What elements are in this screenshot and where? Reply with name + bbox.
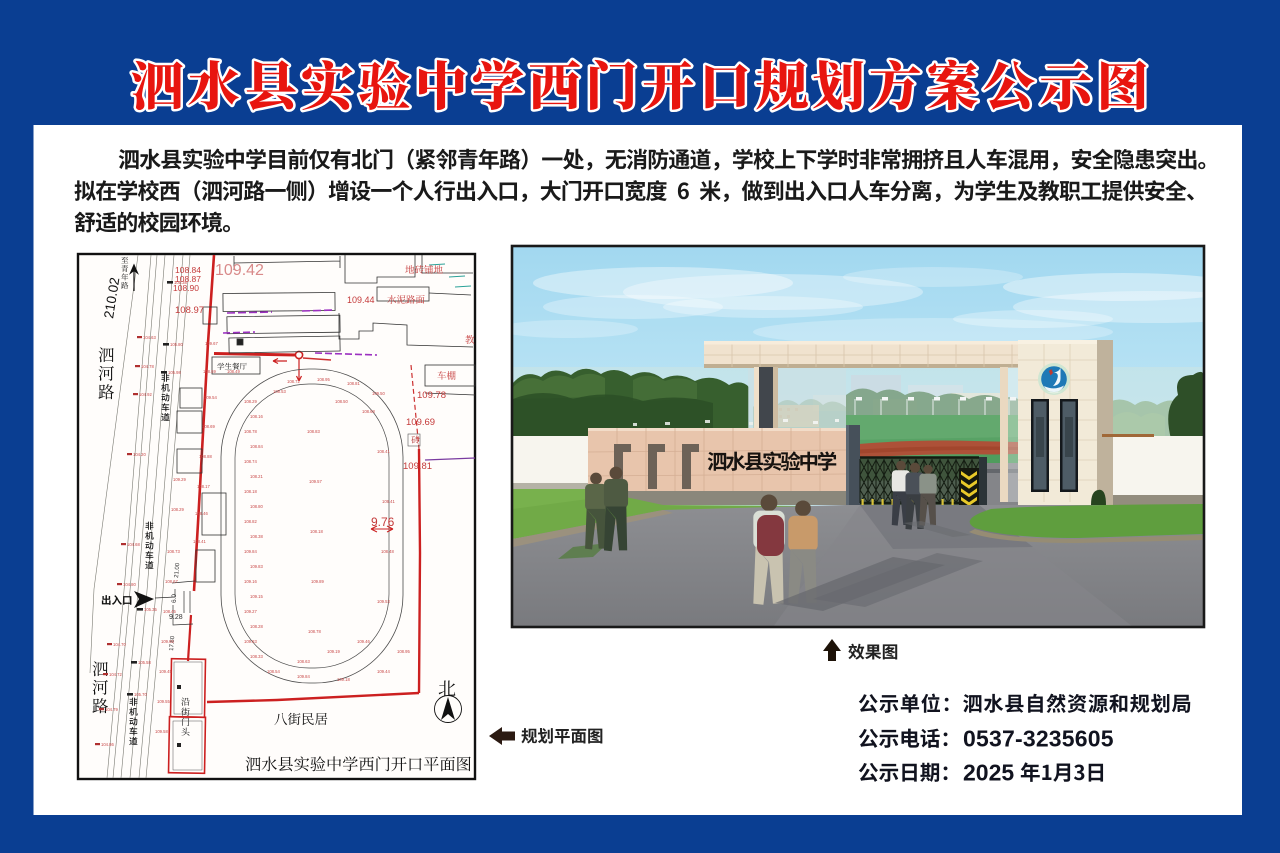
svg-text:108.46: 108.46: [195, 511, 208, 516]
svg-text:109.16: 109.16: [244, 579, 257, 584]
svg-text:108.74: 108.74: [244, 459, 257, 464]
svg-text:109.50: 109.50: [372, 391, 385, 396]
svg-text:109.81: 109.81: [403, 461, 432, 472]
svg-text:109.41: 109.41: [382, 499, 395, 504]
svg-text:108.53: 108.53: [273, 389, 286, 394]
svg-text:109.42: 109.42: [215, 262, 264, 279]
svg-text:105.38: 105.38: [174, 280, 187, 285]
svg-text:108.17: 108.17: [197, 484, 210, 489]
svg-text:109.65: 109.65: [161, 639, 174, 644]
svg-text:105.35: 105.35: [144, 607, 157, 612]
svg-text:108.54: 108.54: [267, 669, 280, 674]
svg-text:0537-3235605: 0537-3235605: [963, 726, 1114, 752]
svg-text:104.78: 104.78: [141, 364, 154, 369]
svg-text:109.15: 109.15: [250, 594, 263, 599]
svg-text:108.72: 108.72: [287, 379, 300, 384]
svg-text:108.69: 108.69: [202, 424, 215, 429]
svg-text:108.97: 108.97: [175, 305, 204, 316]
svg-text:108.49: 108.49: [227, 369, 240, 374]
svg-text:2025: 2025: [963, 760, 1014, 786]
svg-text:108.73: 108.73: [167, 549, 180, 554]
svg-text:9.28: 9.28: [169, 614, 183, 621]
svg-text:109.46: 109.46: [357, 639, 370, 644]
svg-text:108.78: 108.78: [244, 429, 257, 434]
svg-text:109.29: 109.29: [173, 477, 186, 482]
svg-text:109.69: 109.69: [406, 417, 435, 428]
svg-text:109.53: 109.53: [377, 599, 390, 604]
svg-text:105.58: 105.58: [138, 660, 151, 665]
svg-text:109.67: 109.67: [205, 341, 218, 346]
svg-text:104.79: 104.79: [105, 707, 118, 712]
svg-text:109.57: 109.57: [309, 479, 322, 484]
svg-text:109.78: 109.78: [417, 390, 446, 401]
svg-text:108.95: 108.95: [317, 377, 330, 382]
svg-text:104.63: 104.63: [143, 335, 156, 340]
svg-text:108.21: 108.21: [250, 474, 263, 479]
svg-text:108.63: 108.63: [297, 659, 310, 664]
svg-text:108.38: 108.38: [250, 534, 263, 539]
svg-text:104.86: 104.86: [101, 742, 114, 747]
svg-text:108.95: 108.95: [397, 649, 410, 654]
svg-text:109.54: 109.54: [204, 395, 217, 400]
svg-text:109.84: 109.84: [244, 549, 257, 554]
svg-text:108.45: 108.45: [163, 609, 176, 614]
svg-text:108.83: 108.83: [307, 429, 320, 434]
svg-text:109.44: 109.44: [377, 669, 390, 674]
svg-text:109.45: 109.45: [159, 669, 172, 674]
svg-text:108.18: 108.18: [310, 529, 323, 534]
svg-text:108.67: 108.67: [165, 579, 178, 584]
svg-text:104.70: 104.70: [113, 642, 126, 647]
svg-text:108.68: 108.68: [362, 409, 375, 414]
svg-text:108.82: 108.82: [244, 519, 257, 524]
svg-text:108.41: 108.41: [377, 449, 390, 454]
svg-text:108.78: 108.78: [308, 629, 321, 634]
svg-text:109.58: 109.58: [155, 729, 168, 734]
svg-text:108.41: 108.41: [193, 539, 206, 544]
svg-text:104.80: 104.80: [123, 582, 136, 587]
svg-text:105.70: 105.70: [134, 692, 147, 697]
svg-text:104.68: 104.68: [127, 542, 140, 547]
svg-text:109.83: 109.83: [244, 639, 257, 644]
svg-text:105.80: 105.80: [170, 342, 183, 347]
svg-text:108.18: 108.18: [244, 489, 257, 494]
svg-text:108.80: 108.80: [250, 504, 263, 509]
svg-text:108.28: 108.28: [250, 624, 263, 629]
svg-text:104.92: 104.92: [139, 392, 152, 397]
svg-text:109.18: 109.18: [337, 677, 350, 682]
svg-text:104.72: 104.72: [109, 672, 122, 677]
svg-text:108.29: 108.29: [171, 507, 184, 512]
svg-text:109.44: 109.44: [347, 295, 375, 305]
svg-text:109.19: 109.19: [327, 649, 340, 654]
svg-text:108.29: 108.29: [244, 399, 257, 404]
svg-text:109.83: 109.83: [250, 564, 263, 569]
svg-text:109.55: 109.55: [157, 699, 170, 704]
svg-text:108.16: 108.16: [250, 414, 263, 419]
svg-text:6.0: 6.0: [171, 594, 178, 603]
svg-text:109.27: 109.27: [244, 609, 257, 614]
svg-text:108.88: 108.88: [199, 454, 212, 459]
svg-text:108.81: 108.81: [347, 381, 360, 386]
svg-text:104.20: 104.20: [133, 452, 146, 457]
svg-text:108.33: 108.33: [250, 654, 263, 659]
svg-text:105.98: 105.98: [168, 370, 181, 375]
svg-text:108.84: 108.84: [250, 444, 263, 449]
svg-text:108.50: 108.50: [335, 399, 348, 404]
svg-text:109.84: 109.84: [297, 674, 310, 679]
svg-text:108.48: 108.48: [381, 549, 394, 554]
svg-text:109.89: 109.89: [311, 579, 324, 584]
svg-text:108.59: 108.59: [203, 369, 216, 374]
